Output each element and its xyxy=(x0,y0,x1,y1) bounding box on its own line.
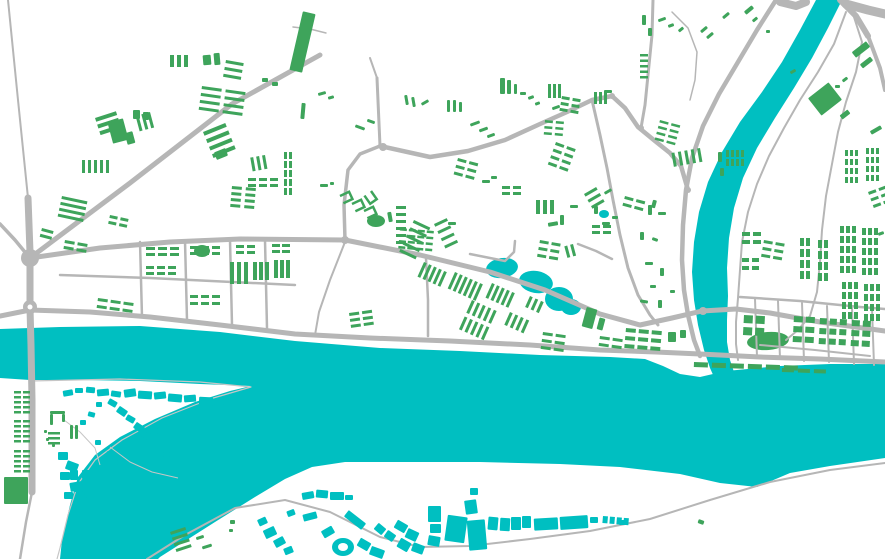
building xyxy=(190,302,198,305)
waterside-structure xyxy=(369,546,385,559)
building-cluster xyxy=(349,310,374,328)
building xyxy=(602,222,610,225)
building xyxy=(170,253,179,256)
building xyxy=(854,282,858,289)
waterside-structure xyxy=(75,388,83,393)
building xyxy=(850,168,853,174)
building xyxy=(256,156,261,170)
building xyxy=(873,202,882,208)
waterside-structure xyxy=(70,470,78,480)
building xyxy=(168,272,176,275)
road xyxy=(672,12,697,100)
building xyxy=(119,223,127,228)
building xyxy=(364,322,374,326)
building xyxy=(272,82,278,86)
building xyxy=(349,312,359,316)
building-cluster xyxy=(742,258,759,270)
waterside-structure xyxy=(321,526,335,539)
building xyxy=(835,85,840,88)
building xyxy=(350,318,360,322)
building-cluster xyxy=(272,244,290,253)
building xyxy=(280,260,284,278)
building xyxy=(284,179,287,186)
waterside-structure xyxy=(124,388,137,398)
waterside-structure xyxy=(470,488,478,495)
building xyxy=(852,320,860,326)
building-cluster xyxy=(504,312,529,333)
building xyxy=(852,266,856,273)
building xyxy=(697,148,702,162)
building xyxy=(437,225,451,234)
building xyxy=(866,148,869,154)
building-cluster xyxy=(592,225,611,234)
building xyxy=(744,315,753,323)
building xyxy=(237,262,241,284)
building xyxy=(201,93,221,99)
building xyxy=(840,266,844,273)
building xyxy=(848,302,852,309)
building xyxy=(202,86,222,92)
building-cluster xyxy=(417,262,446,287)
building-cluster xyxy=(454,158,479,180)
road xyxy=(778,301,780,359)
building-cluster xyxy=(253,262,269,280)
building xyxy=(289,179,292,186)
building xyxy=(800,260,804,268)
building xyxy=(871,166,874,172)
road xyxy=(380,96,688,190)
building xyxy=(4,477,28,504)
building xyxy=(230,520,235,524)
building xyxy=(224,67,242,73)
building-cluster xyxy=(230,186,256,209)
waterside-structure xyxy=(82,470,90,479)
building xyxy=(548,221,559,227)
building xyxy=(864,284,868,291)
building xyxy=(806,260,810,268)
building xyxy=(23,396,30,399)
pond-ring-hole xyxy=(338,543,348,551)
building xyxy=(14,450,21,453)
waterside-structure xyxy=(168,393,183,402)
waterside-structure xyxy=(283,546,294,556)
building xyxy=(555,142,564,148)
building xyxy=(753,240,761,244)
building xyxy=(855,168,858,174)
building-cluster xyxy=(146,266,176,275)
building xyxy=(244,205,254,209)
building xyxy=(14,396,21,399)
building xyxy=(752,16,759,22)
building xyxy=(212,295,220,298)
building xyxy=(603,231,611,234)
building xyxy=(396,220,406,223)
building xyxy=(479,127,488,133)
building xyxy=(842,292,846,299)
building xyxy=(851,330,859,336)
building xyxy=(722,12,730,19)
building xyxy=(556,121,564,124)
building xyxy=(50,414,53,425)
building xyxy=(454,172,463,177)
building xyxy=(854,312,858,319)
building xyxy=(23,455,30,458)
building xyxy=(549,256,558,261)
building xyxy=(82,160,85,173)
building xyxy=(244,262,248,284)
building xyxy=(231,198,241,202)
road-junction xyxy=(609,93,615,99)
building xyxy=(824,251,828,259)
building xyxy=(552,105,561,111)
building xyxy=(202,544,212,550)
waterside-structure xyxy=(95,440,101,445)
building xyxy=(122,309,132,313)
building xyxy=(467,168,476,173)
road xyxy=(140,242,142,317)
building xyxy=(513,192,521,195)
building xyxy=(852,226,856,233)
building xyxy=(625,336,635,341)
building xyxy=(259,184,267,187)
waterside-structure xyxy=(97,388,110,396)
building xyxy=(225,89,245,95)
waterside-structure xyxy=(316,489,329,498)
building xyxy=(245,193,255,197)
building xyxy=(550,155,559,161)
building xyxy=(44,430,47,433)
waterside-structure xyxy=(374,523,387,536)
building xyxy=(669,129,678,134)
building xyxy=(640,60,648,63)
building xyxy=(525,296,533,308)
road xyxy=(370,58,377,78)
road xyxy=(578,244,612,259)
building xyxy=(560,215,564,225)
building xyxy=(700,26,708,33)
building xyxy=(544,132,552,135)
building xyxy=(874,248,878,255)
building xyxy=(328,95,335,99)
waterside-structure xyxy=(117,460,123,465)
building xyxy=(640,71,648,74)
building xyxy=(107,118,128,143)
waterside-structure xyxy=(86,387,95,394)
building xyxy=(805,327,814,333)
building-cluster xyxy=(108,215,128,228)
building xyxy=(535,101,541,106)
waterside-structure xyxy=(150,428,158,434)
building xyxy=(513,186,521,189)
main-river-and-southwest-channel xyxy=(0,326,885,559)
building xyxy=(201,252,209,255)
building xyxy=(559,166,568,172)
waterside-structure xyxy=(330,492,344,500)
building xyxy=(668,23,675,28)
building xyxy=(190,295,198,298)
building xyxy=(818,262,822,270)
building xyxy=(558,84,561,98)
building xyxy=(63,246,73,251)
waterside-structure xyxy=(87,411,95,418)
building-cluster xyxy=(548,142,576,172)
building xyxy=(146,266,154,269)
building xyxy=(668,135,677,140)
building xyxy=(133,110,140,119)
building xyxy=(640,232,644,240)
building xyxy=(871,157,874,163)
building-cluster xyxy=(862,228,878,275)
waterside-structure xyxy=(487,517,498,531)
waterside-structure xyxy=(138,391,153,400)
building xyxy=(846,256,850,263)
building xyxy=(814,369,826,373)
building-cluster xyxy=(170,55,188,67)
building xyxy=(594,206,598,214)
building xyxy=(658,126,667,131)
building xyxy=(766,365,780,370)
waterside-structure xyxy=(302,511,317,521)
building xyxy=(250,157,255,171)
building xyxy=(874,268,878,275)
road-junction xyxy=(638,125,644,131)
building xyxy=(561,96,569,100)
building xyxy=(572,98,580,102)
building xyxy=(465,175,474,180)
building xyxy=(23,411,30,414)
building xyxy=(650,285,656,288)
building xyxy=(14,411,21,414)
building xyxy=(570,244,576,256)
building xyxy=(793,326,802,332)
building xyxy=(731,159,734,166)
building xyxy=(544,126,552,129)
building xyxy=(866,175,869,181)
waterside-structure xyxy=(154,391,167,399)
waterside-structure xyxy=(58,452,68,460)
building xyxy=(712,363,726,368)
building xyxy=(592,231,600,234)
building xyxy=(868,238,872,245)
building xyxy=(868,248,872,255)
building xyxy=(550,249,559,254)
building xyxy=(14,440,21,443)
building xyxy=(247,251,255,254)
building xyxy=(232,186,242,190)
building xyxy=(543,332,553,336)
building xyxy=(731,150,734,157)
building xyxy=(870,196,879,202)
building xyxy=(658,212,666,215)
building xyxy=(845,159,848,165)
building xyxy=(196,535,205,540)
building xyxy=(871,148,874,154)
building xyxy=(88,160,91,173)
building xyxy=(742,258,749,262)
building xyxy=(548,162,557,168)
building xyxy=(146,272,154,275)
building xyxy=(284,161,287,168)
building xyxy=(564,246,570,258)
building xyxy=(491,176,497,179)
building-cluster xyxy=(851,320,871,347)
building xyxy=(753,232,761,236)
building-cluster xyxy=(223,60,244,80)
courtyard-building xyxy=(352,200,364,211)
building xyxy=(225,60,243,66)
building xyxy=(455,165,464,170)
building xyxy=(14,435,21,438)
waterside-structure xyxy=(257,516,268,526)
waterside-structure xyxy=(500,518,511,532)
building xyxy=(640,299,648,303)
building xyxy=(425,248,432,251)
building xyxy=(848,282,852,289)
building xyxy=(652,330,662,335)
building xyxy=(752,266,759,270)
waterside-structure xyxy=(125,414,136,424)
building-cluster xyxy=(230,262,248,284)
building-cluster xyxy=(840,226,856,273)
building-cluster xyxy=(274,260,290,278)
building xyxy=(634,206,643,211)
building xyxy=(762,247,771,252)
building xyxy=(659,120,668,125)
building xyxy=(453,100,456,112)
building xyxy=(624,196,633,201)
building xyxy=(98,298,108,302)
building xyxy=(612,338,622,342)
building xyxy=(866,166,869,172)
building-cluster xyxy=(800,238,810,279)
building xyxy=(736,159,739,166)
building xyxy=(14,470,21,473)
waterside-structure xyxy=(467,519,488,550)
building xyxy=(230,262,234,284)
building xyxy=(848,312,852,319)
waterside-structure xyxy=(273,536,286,548)
building xyxy=(864,294,868,301)
building xyxy=(229,529,233,532)
waterside-structure xyxy=(96,402,102,407)
building xyxy=(170,55,174,67)
building xyxy=(48,437,60,440)
building xyxy=(212,246,220,249)
building xyxy=(448,222,456,225)
building xyxy=(157,272,165,275)
building xyxy=(800,238,804,246)
building xyxy=(726,150,729,157)
building xyxy=(819,338,826,344)
building-cluster xyxy=(448,272,483,301)
building xyxy=(839,339,846,345)
building xyxy=(520,92,526,95)
building xyxy=(848,292,852,299)
building xyxy=(561,159,570,165)
building xyxy=(800,249,804,257)
building-cluster xyxy=(248,178,278,187)
building xyxy=(426,242,433,245)
building-cluster xyxy=(284,152,292,195)
building xyxy=(862,258,866,265)
building xyxy=(864,314,868,321)
building xyxy=(289,152,292,159)
building xyxy=(146,247,155,250)
building xyxy=(14,391,21,394)
building xyxy=(845,150,848,156)
building xyxy=(806,317,815,323)
road-junction xyxy=(21,249,39,267)
building xyxy=(143,112,149,120)
building-cluster xyxy=(250,155,267,171)
map-canvas[interactable] xyxy=(0,0,885,559)
waterside-structure xyxy=(357,538,372,552)
building xyxy=(744,5,754,14)
building xyxy=(470,120,480,126)
building xyxy=(14,420,21,423)
building xyxy=(539,240,548,245)
building xyxy=(597,317,606,330)
building xyxy=(868,258,872,265)
building xyxy=(842,302,846,309)
building xyxy=(201,246,209,249)
building xyxy=(697,519,704,525)
building xyxy=(874,258,878,265)
building xyxy=(553,84,556,98)
building xyxy=(718,152,722,162)
building-cluster xyxy=(594,92,607,104)
building xyxy=(367,119,376,125)
building xyxy=(543,200,547,214)
building xyxy=(840,226,844,233)
building xyxy=(447,100,450,112)
building xyxy=(706,32,714,39)
building xyxy=(75,425,78,439)
building xyxy=(684,150,689,164)
building xyxy=(855,177,858,183)
building xyxy=(842,312,846,319)
building xyxy=(536,200,540,214)
building xyxy=(146,253,155,256)
building xyxy=(862,228,866,235)
building xyxy=(555,133,563,136)
road xyxy=(28,198,32,492)
building xyxy=(282,250,290,253)
building xyxy=(642,15,646,25)
building xyxy=(23,420,30,423)
building xyxy=(560,102,568,106)
building xyxy=(870,304,874,311)
building xyxy=(599,343,609,347)
building xyxy=(23,460,30,463)
building xyxy=(870,284,874,291)
building xyxy=(14,455,21,458)
city-map-svg xyxy=(0,0,885,559)
building xyxy=(846,226,850,233)
building xyxy=(553,149,562,155)
waterside-structure xyxy=(116,406,128,417)
building xyxy=(604,92,607,104)
building-cluster xyxy=(868,186,885,208)
building xyxy=(106,160,109,173)
road xyxy=(315,242,345,335)
building xyxy=(265,262,269,280)
building-cluster xyxy=(485,283,514,308)
building-cluster xyxy=(845,150,858,183)
waterside-structure xyxy=(301,491,314,500)
building xyxy=(638,337,648,342)
building xyxy=(444,240,458,249)
